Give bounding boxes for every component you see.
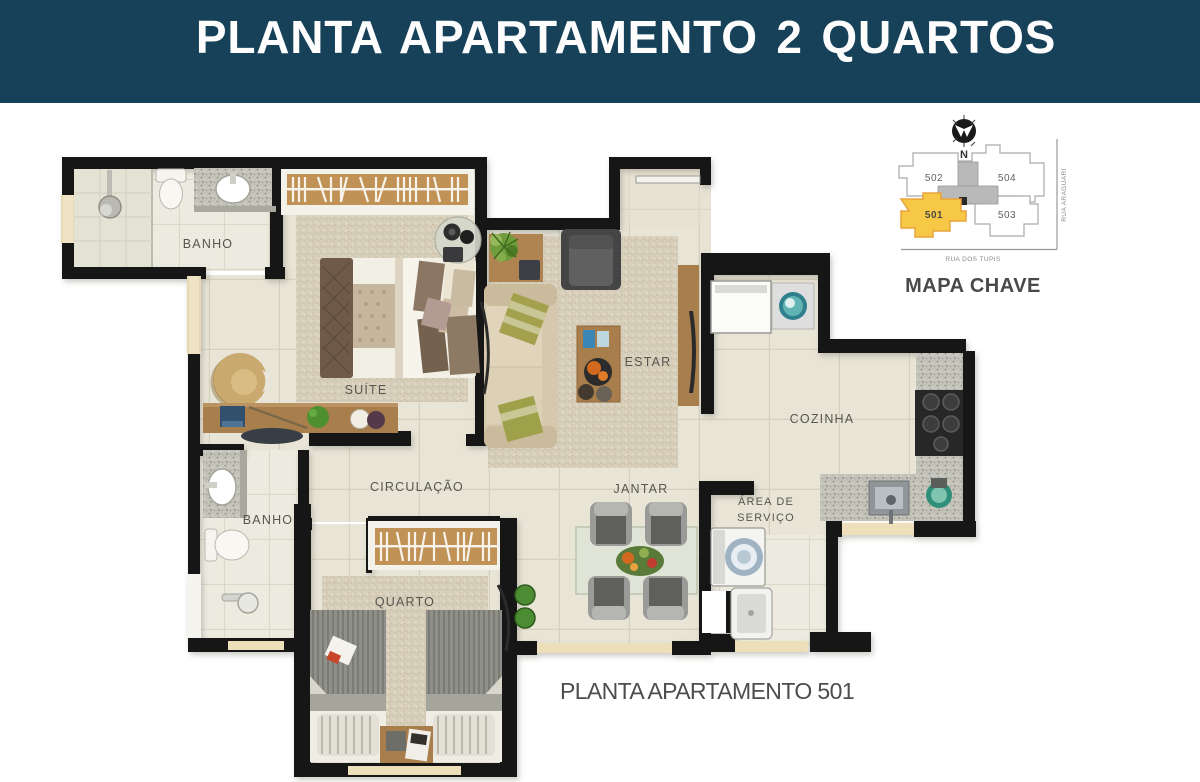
svg-text:SUÍTE: SUÍTE	[345, 382, 388, 397]
svg-text:ÁREA DE: ÁREA DE	[738, 495, 794, 508]
svg-text:BANHO: BANHO	[183, 237, 233, 251]
svg-text:QUARTO: QUARTO	[375, 595, 435, 609]
svg-text:CIRCULAÇÃO: CIRCULAÇÃO	[370, 480, 464, 494]
svg-text:ESTAR: ESTAR	[625, 355, 672, 369]
svg-text:MAPA CHAVE: MAPA CHAVE	[905, 275, 1041, 297]
svg-text:N: N	[960, 149, 968, 161]
svg-text:BANHO: BANHO	[243, 513, 293, 527]
svg-text:JANTAR: JANTAR	[614, 482, 669, 496]
svg-text:RUA DOS TUPIS: RUA DOS TUPIS	[945, 256, 1001, 263]
svg-text:SERVIÇO: SERVIÇO	[737, 512, 795, 524]
svg-text:RUA ARAGUARI: RUA ARAGUARI	[1061, 168, 1068, 222]
svg-text:502: 502	[925, 173, 943, 184]
svg-text:COZINHA: COZINHA	[790, 412, 855, 426]
svg-text:501: 501	[925, 210, 943, 221]
svg-text:503: 503	[998, 210, 1016, 221]
svg-text:504: 504	[998, 173, 1016, 184]
svg-text:PLANTA APARTAMENTO 501: PLANTA APARTAMENTO 501	[560, 678, 854, 704]
